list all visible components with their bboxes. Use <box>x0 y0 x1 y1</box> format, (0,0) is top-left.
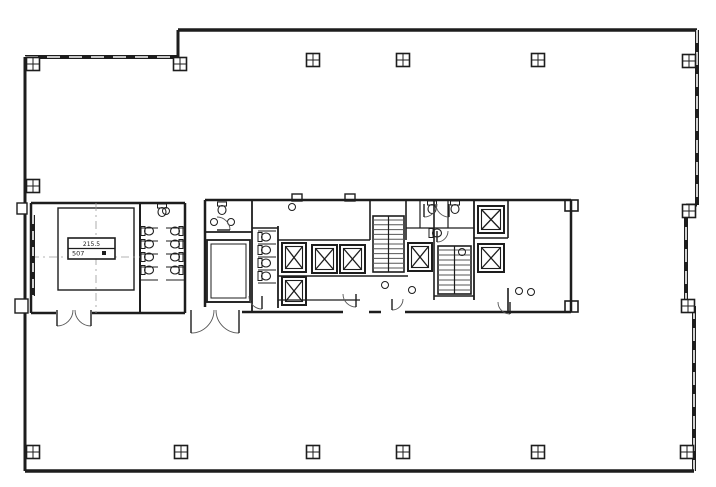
wall-pilaster <box>15 299 28 313</box>
toilet-fixture <box>429 229 442 238</box>
door-swing-arc <box>217 217 230 230</box>
toilet-fixture <box>258 246 271 255</box>
sink-fixture <box>289 204 296 211</box>
toilet-fixture <box>428 201 437 214</box>
door-opening <box>381 307 405 316</box>
room-tag-line2: 507 <box>72 250 84 258</box>
wall-pilaster <box>17 203 27 214</box>
inner-room-outline <box>207 240 250 302</box>
door-swing-arc <box>249 296 262 309</box>
floor-plan-page: 215.5507 <box>0 0 716 487</box>
inner-room-outline <box>211 244 246 298</box>
toilet-fixture <box>258 272 271 281</box>
sink-fixture <box>382 282 389 289</box>
toilet-fixture <box>258 259 271 268</box>
toilet-fixture <box>258 233 271 242</box>
sink-fixture <box>409 287 416 294</box>
door-opening <box>56 307 92 317</box>
toilet-fixture <box>451 201 460 214</box>
sink-fixture <box>516 288 523 295</box>
door-opening <box>343 307 369 316</box>
door-swing-arc <box>436 204 449 217</box>
floorplan-svg: 215.5507 <box>0 0 716 487</box>
room-tag-marker <box>102 251 106 255</box>
room-tag-line1: 215.5 <box>83 241 100 248</box>
door-opening <box>188 307 242 317</box>
toilet-fixture <box>218 202 227 215</box>
sink-fixture <box>211 219 218 226</box>
sink-fixture <box>528 289 535 296</box>
